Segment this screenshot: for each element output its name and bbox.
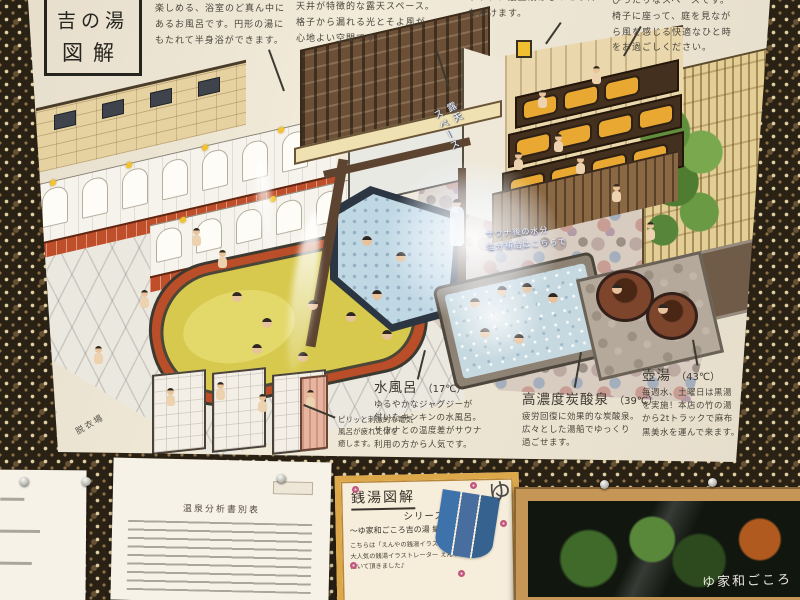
person-figure xyxy=(140,290,149,308)
person-figure xyxy=(218,250,227,268)
lamp-icon xyxy=(50,179,56,186)
carbonated-bath-name: 高濃度炭酸泉 xyxy=(522,392,609,408)
poster-title-name: 吉の湯 xyxy=(57,6,129,33)
plum-blossom-icon xyxy=(352,486,359,493)
note-sauna-top: サウナ、最上段はじっとり汗 をかけます。 xyxy=(468,0,598,23)
framed-sign-text: ゆ家和ごころ xyxy=(702,568,793,590)
pointer-line xyxy=(545,22,561,44)
person-figure xyxy=(232,292,242,302)
person-figure xyxy=(592,66,601,84)
pot-bath-temp: （43℃） xyxy=(676,372,720,383)
person-figure xyxy=(538,90,547,108)
person-figure xyxy=(658,304,668,314)
poster-title-box: 吉の湯 図解 xyxy=(44,0,142,76)
window xyxy=(102,99,124,119)
person-figure xyxy=(480,328,490,338)
document-title: 温泉分析書別表 xyxy=(112,500,330,518)
cold-bath-desc: ゆるやかなジャグジーが 付いたキンキンの水風呂。 サウナとの温度差がサウナ 利用… xyxy=(374,399,482,452)
caption-carbonated-bath: 高濃度炭酸泉 （39℃） 疲労回復に効果的な炭酸泉。 広々とした湯船でゆっくり … xyxy=(522,388,658,451)
person-figure xyxy=(612,184,621,202)
person-figure xyxy=(497,286,507,296)
person-figure xyxy=(382,330,392,340)
note-center-bath: 楽しめる、浴室のど真ん中に あるお風呂です。円形の湯に もたれて半身浴ができます… xyxy=(155,2,285,49)
lamp-icon xyxy=(278,126,284,133)
plum-blossom-icon xyxy=(470,482,477,489)
plum-blossom-icon xyxy=(350,562,357,569)
person-figure xyxy=(192,228,201,246)
plum-blossom-icon xyxy=(500,520,507,527)
window xyxy=(54,110,76,130)
bathhouse-poster-photo: 吉の湯 図解 楽しめる、浴室のど真ん中に あるお風呂です。円形の湯に もたれて半… xyxy=(0,0,800,600)
push-pin-icon xyxy=(708,478,717,487)
window xyxy=(198,77,220,97)
person-figure xyxy=(470,298,480,308)
pot-bath-desc: 毎週水、土曜日は黒湯 を実施！本店の竹の湯 から2tトラックで麻布 黒美水を運ん… xyxy=(642,387,740,440)
person-figure xyxy=(94,346,103,364)
note-chairs-space: ぴったりなスペースです。 椅子に座って、庭を見なが ら風を感じる快適なひと時 を… xyxy=(612,0,732,57)
corridor-panel xyxy=(152,369,206,455)
document-body-text xyxy=(127,520,313,594)
cold-bath-temp: （17℃） xyxy=(423,384,467,395)
person-figure xyxy=(262,318,272,328)
poster-title-sub: 図解 xyxy=(62,37,124,67)
person-figure xyxy=(646,222,655,240)
dressing-room-label: 脱衣場 xyxy=(73,411,106,437)
plum-blossom-icon xyxy=(458,570,465,577)
framed-photo-image: ゆ家和ごころ xyxy=(528,501,800,597)
person-figure xyxy=(372,290,382,300)
push-pin-icon xyxy=(82,477,91,486)
person-figure xyxy=(576,156,585,174)
lamp-icon xyxy=(202,144,208,151)
person-figure xyxy=(252,344,262,354)
person-figure xyxy=(514,334,524,344)
note-card-title: 銭湯図解 xyxy=(351,486,415,510)
push-pin-icon xyxy=(20,477,29,486)
pot-bath-name: 壺湯 xyxy=(642,368,671,384)
person-figure xyxy=(612,284,622,294)
person-figure xyxy=(554,134,563,152)
carbonated-bath-desc: 疲労回復に効果的な炭酸泉。 広々とした湯船でゆっくり 過ごせます。 xyxy=(522,411,658,451)
robed-person-figure xyxy=(450,206,464,246)
person-figure xyxy=(396,252,406,262)
pointer-line xyxy=(268,49,284,91)
person-figure xyxy=(346,312,356,322)
sauna-window xyxy=(516,40,532,58)
person-figure xyxy=(514,152,523,170)
onsen-analysis-document: 温泉分析書別表 xyxy=(110,458,331,600)
person-figure xyxy=(258,394,267,412)
lamp-icon xyxy=(126,161,132,168)
person-figure xyxy=(216,382,225,400)
pot-bath-2 xyxy=(646,292,698,340)
caption-cold-bath: 水風呂 （17℃） ゆるやかなジャグジーが 付いたキンキンの水風呂。 サウナとの… xyxy=(374,376,482,452)
window xyxy=(150,88,172,108)
caption-pot-bath: 壺湯 （43℃） 毎週水、土曜日は黒湯 を実施！本店の竹の湯 から2tトラックで… xyxy=(642,364,740,440)
lamp-icon xyxy=(180,216,186,223)
person-figure xyxy=(362,236,372,246)
yu-calligraphy: ゆ xyxy=(486,471,513,508)
person-figure xyxy=(522,283,532,293)
push-pin-icon xyxy=(277,474,286,483)
note-roofed-space: 天井が特徴的な露天スペース。 格子から漏れる光とそよ風が 心地よい空間です。 xyxy=(296,0,435,47)
push-pin-icon xyxy=(600,480,609,489)
framed-photo-sign: ゆ家和ごころ xyxy=(514,487,800,600)
cold-bath-name: 水風呂 xyxy=(374,380,418,396)
person-figure xyxy=(166,388,175,406)
sento-zukai-note-card: 銭湯図解 シリーズ 〜ゆ家和ごころ吉の湯 編〜 こちらは「えんやの銭湯イラストめ… xyxy=(335,472,522,600)
note-card-edition: 〜ゆ家和ごころ吉の湯 編〜 xyxy=(350,524,449,537)
person-figure xyxy=(548,293,558,303)
pinned-paper-left xyxy=(0,470,87,600)
document-stamp xyxy=(273,481,313,495)
